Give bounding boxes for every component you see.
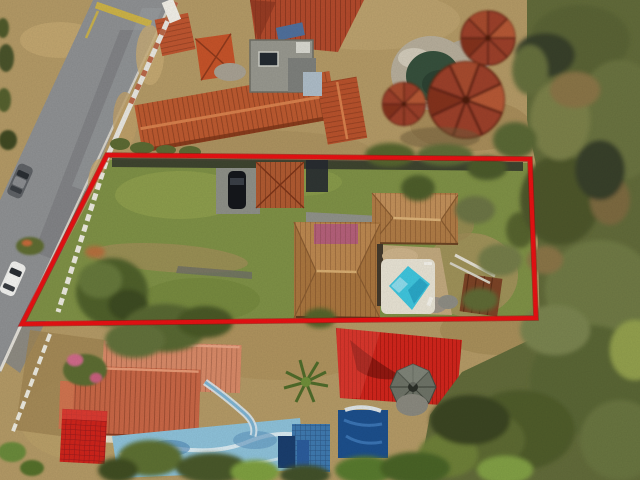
aerial-photo xyxy=(0,0,640,480)
photo-grain xyxy=(0,0,640,480)
